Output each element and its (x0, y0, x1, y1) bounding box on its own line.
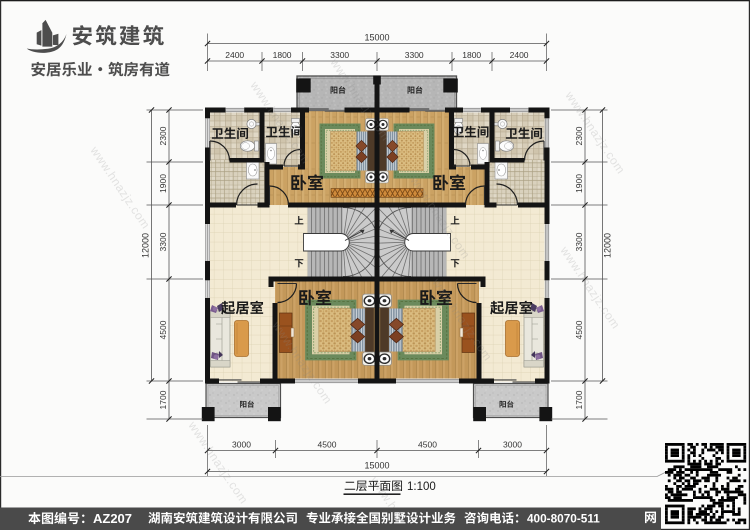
svg-text:1700: 1700 (158, 390, 168, 409)
svg-text:4500: 4500 (418, 440, 437, 450)
svg-text:2400: 2400 (225, 50, 244, 60)
svg-text:3000: 3000 (232, 440, 251, 450)
svg-text:1800: 1800 (273, 50, 292, 60)
svg-text:15000: 15000 (364, 33, 389, 43)
svg-text:AZ207: AZ207 (93, 511, 132, 526)
svg-text:3300: 3300 (574, 232, 584, 251)
svg-text:400-8070-511: 400-8070-511 (527, 512, 600, 526)
svg-text:3300: 3300 (405, 50, 424, 60)
svg-text:1:100: 1:100 (407, 481, 436, 493)
svg-text:4500: 4500 (574, 320, 584, 339)
svg-text:1700: 1700 (574, 390, 584, 409)
svg-text:3000: 3000 (503, 440, 522, 450)
svg-text:3300: 3300 (158, 232, 168, 251)
svg-text:1900: 1900 (574, 174, 584, 193)
svg-text:4500: 4500 (158, 320, 168, 339)
svg-text:2300: 2300 (574, 126, 584, 145)
svg-text:4500: 4500 (318, 440, 337, 450)
svg-text:1800: 1800 (462, 50, 481, 60)
svg-text:2300: 2300 (158, 126, 168, 145)
svg-text:12000: 12000 (603, 233, 613, 258)
svg-text:12000: 12000 (141, 233, 151, 258)
svg-text:15000: 15000 (364, 461, 389, 471)
svg-text:2400: 2400 (510, 50, 529, 60)
svg-text:1900: 1900 (158, 174, 168, 193)
